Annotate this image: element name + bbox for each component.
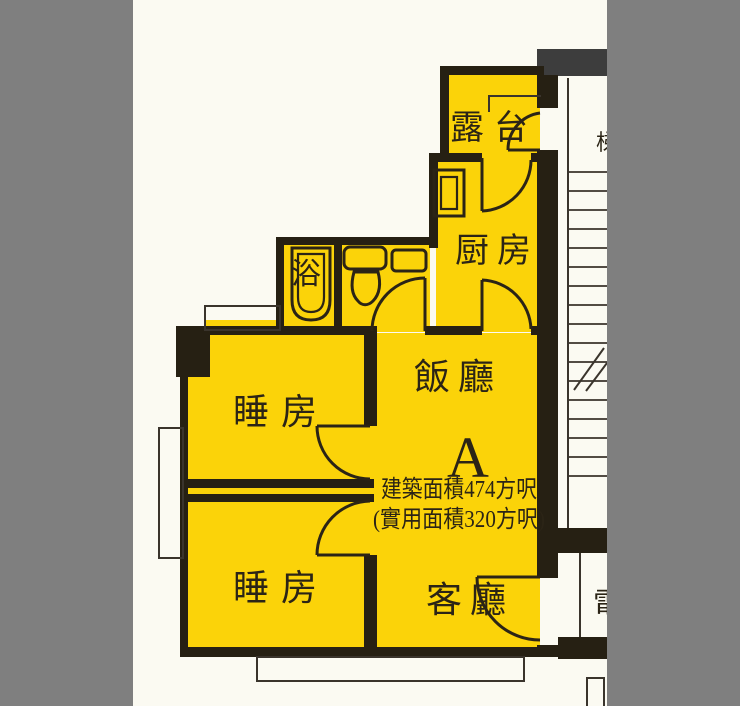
wall-balcony-top bbox=[440, 66, 544, 75]
wall-lobby-upper bbox=[558, 528, 607, 553]
label-bath: 浴 bbox=[291, 258, 321, 291]
wall-bath-divider bbox=[334, 244, 342, 332]
wall-dining-top-mid bbox=[425, 326, 482, 335]
wall-bedroom-divider-a bbox=[182, 479, 374, 488]
wall-bedroom1-right bbox=[364, 326, 377, 426]
label-balcony: 露台 bbox=[450, 109, 538, 147]
floor-plan-page: 露台 厨房 浴 睡房 睡房 飯廳 客廳 A 建築面積474方呎 (實用面積320… bbox=[0, 0, 740, 706]
area-gross: 建築面積474方呎 bbox=[381, 476, 537, 503]
wall-right-upper bbox=[537, 75, 558, 108]
wall-lobby-lower bbox=[558, 637, 607, 659]
floor-plan-svg: 露台 厨房 浴 睡房 睡房 飯廳 客廳 A 建築面積474方呎 (實用面積320… bbox=[0, 0, 740, 706]
wall-bedroom2-right bbox=[364, 555, 377, 657]
label-bedroom2: 睡房 bbox=[233, 568, 329, 608]
area-net: (實用面積320方呎) bbox=[373, 506, 545, 533]
structure-band bbox=[537, 49, 607, 76]
wall-bedroom-divider-b bbox=[182, 494, 374, 502]
label-dining: 飯廳 bbox=[414, 357, 502, 397]
label-bedroom1: 睡房 bbox=[233, 392, 329, 432]
label-living: 客廳 bbox=[426, 580, 514, 620]
label-kitchen: 厨房 bbox=[455, 232, 539, 270]
wall-bath-top bbox=[276, 237, 438, 245]
wall-right-lower bbox=[537, 645, 558, 657]
wall-balcony-left bbox=[440, 66, 449, 160]
